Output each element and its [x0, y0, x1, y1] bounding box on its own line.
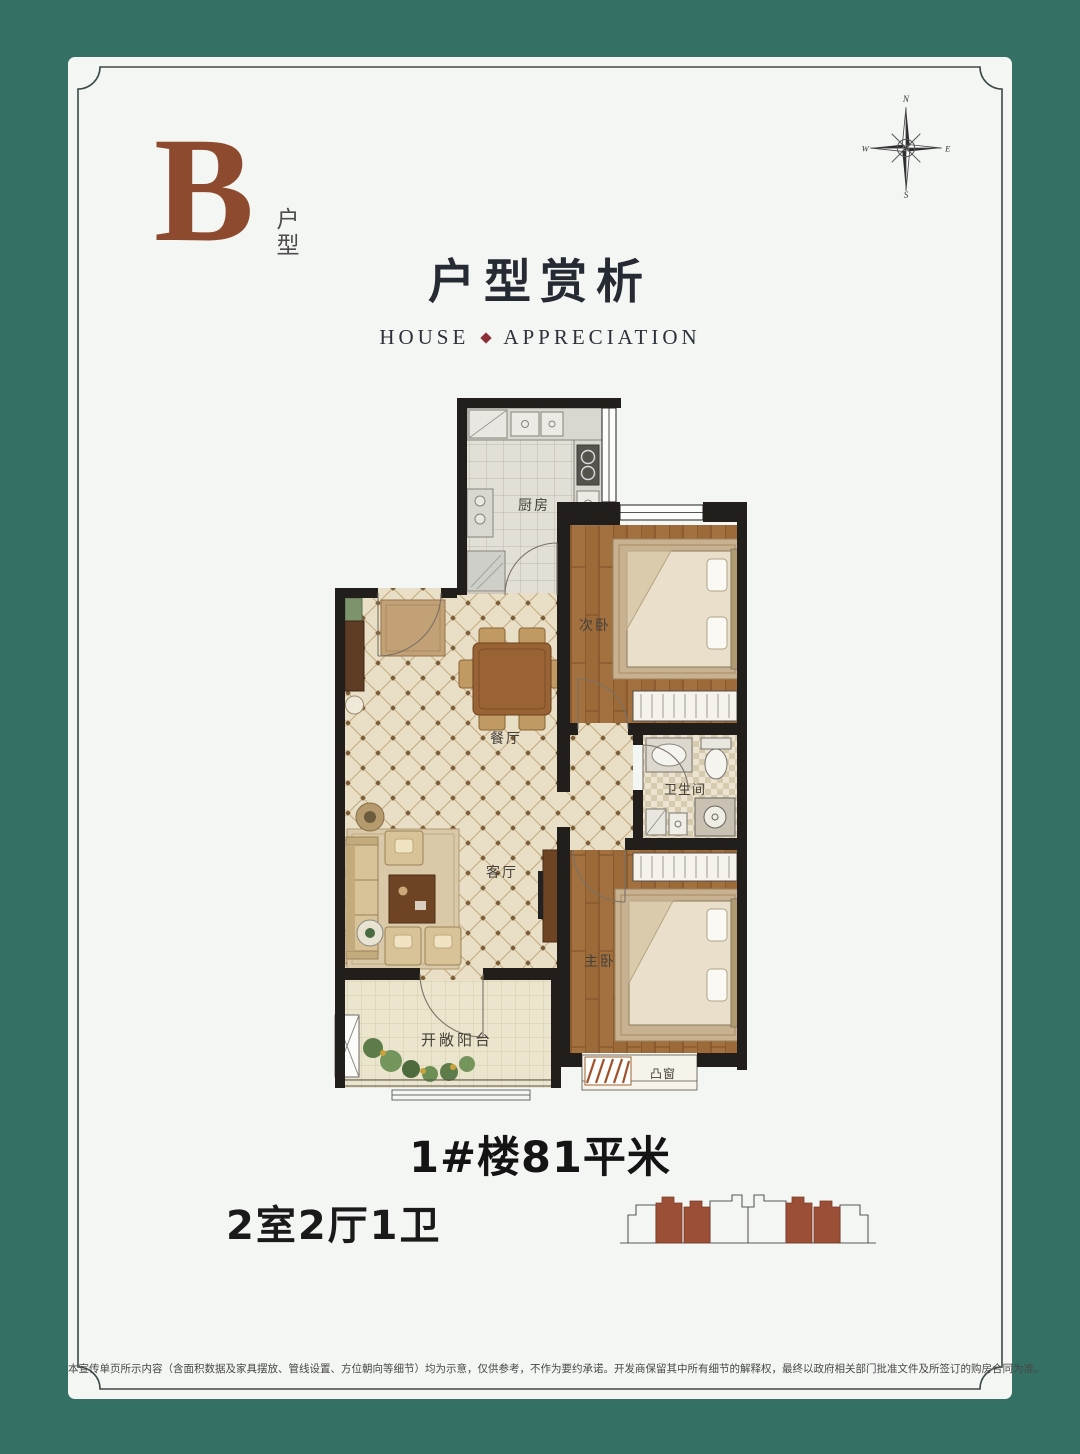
- poster-panel: B 户型 户型赏析 HOUSEAPPRECIATION N W: [68, 57, 1012, 1399]
- poster-page: B 户型 户型赏析 HOUSEAPPRECIATION N W: [0, 0, 1080, 1454]
- subtitle-left: HOUSE: [379, 325, 469, 349]
- layout-text: 2室2厅1卫: [226, 1193, 442, 1251]
- bay-window-label: 凸窗: [650, 1067, 676, 1081]
- page-subtitle: HOUSEAPPRECIATION: [68, 325, 1012, 350]
- master-bedroom-label: 主卧: [584, 954, 616, 970]
- compass-south-label: S: [904, 190, 909, 199]
- entry-mat: [381, 600, 445, 656]
- hallway-floor: [570, 735, 633, 838]
- coffee-table: [389, 875, 435, 923]
- compass-east-label: E: [944, 144, 951, 154]
- toilet: [705, 749, 727, 779]
- dining-table: [473, 643, 551, 715]
- diamond-separator-icon: [481, 333, 492, 344]
- compass-west-label: W: [862, 144, 870, 154]
- page-header: 户型赏析 HOUSEAPPRECIATION: [68, 243, 1012, 350]
- balcony-label: 开敞阳台: [421, 1031, 493, 1049]
- kitchen-label: 厨房: [518, 498, 550, 514]
- second-bedroom-label: 次卧: [579, 618, 611, 634]
- floorplan: 厨房 次卧 卫生间 餐厅 客厅 主卧 开敞阳台 凸窗: [333, 393, 763, 1103]
- living-label: 客厅: [486, 864, 518, 881]
- disclaimer-text: 本宣传单页所示内容（含面积数据及家具摆放、管线设置、方位朝向等细节）均为示意，仅…: [68, 1361, 1012, 1376]
- compass-north-label: N: [902, 94, 910, 104]
- dining-label: 餐厅: [490, 731, 522, 747]
- bathroom-label: 卫生间: [664, 783, 706, 798]
- sideboard: [345, 621, 364, 691]
- master-bedroom-furniture: [615, 853, 741, 1041]
- page-title: 户型赏析: [68, 243, 1012, 312]
- building-area-text: 1#楼81平米: [68, 1123, 1012, 1185]
- compass-rose-icon: N W E S: [860, 93, 952, 199]
- building-silhouette: [598, 1179, 898, 1254]
- subtitle-right: APPRECIATION: [503, 325, 700, 349]
